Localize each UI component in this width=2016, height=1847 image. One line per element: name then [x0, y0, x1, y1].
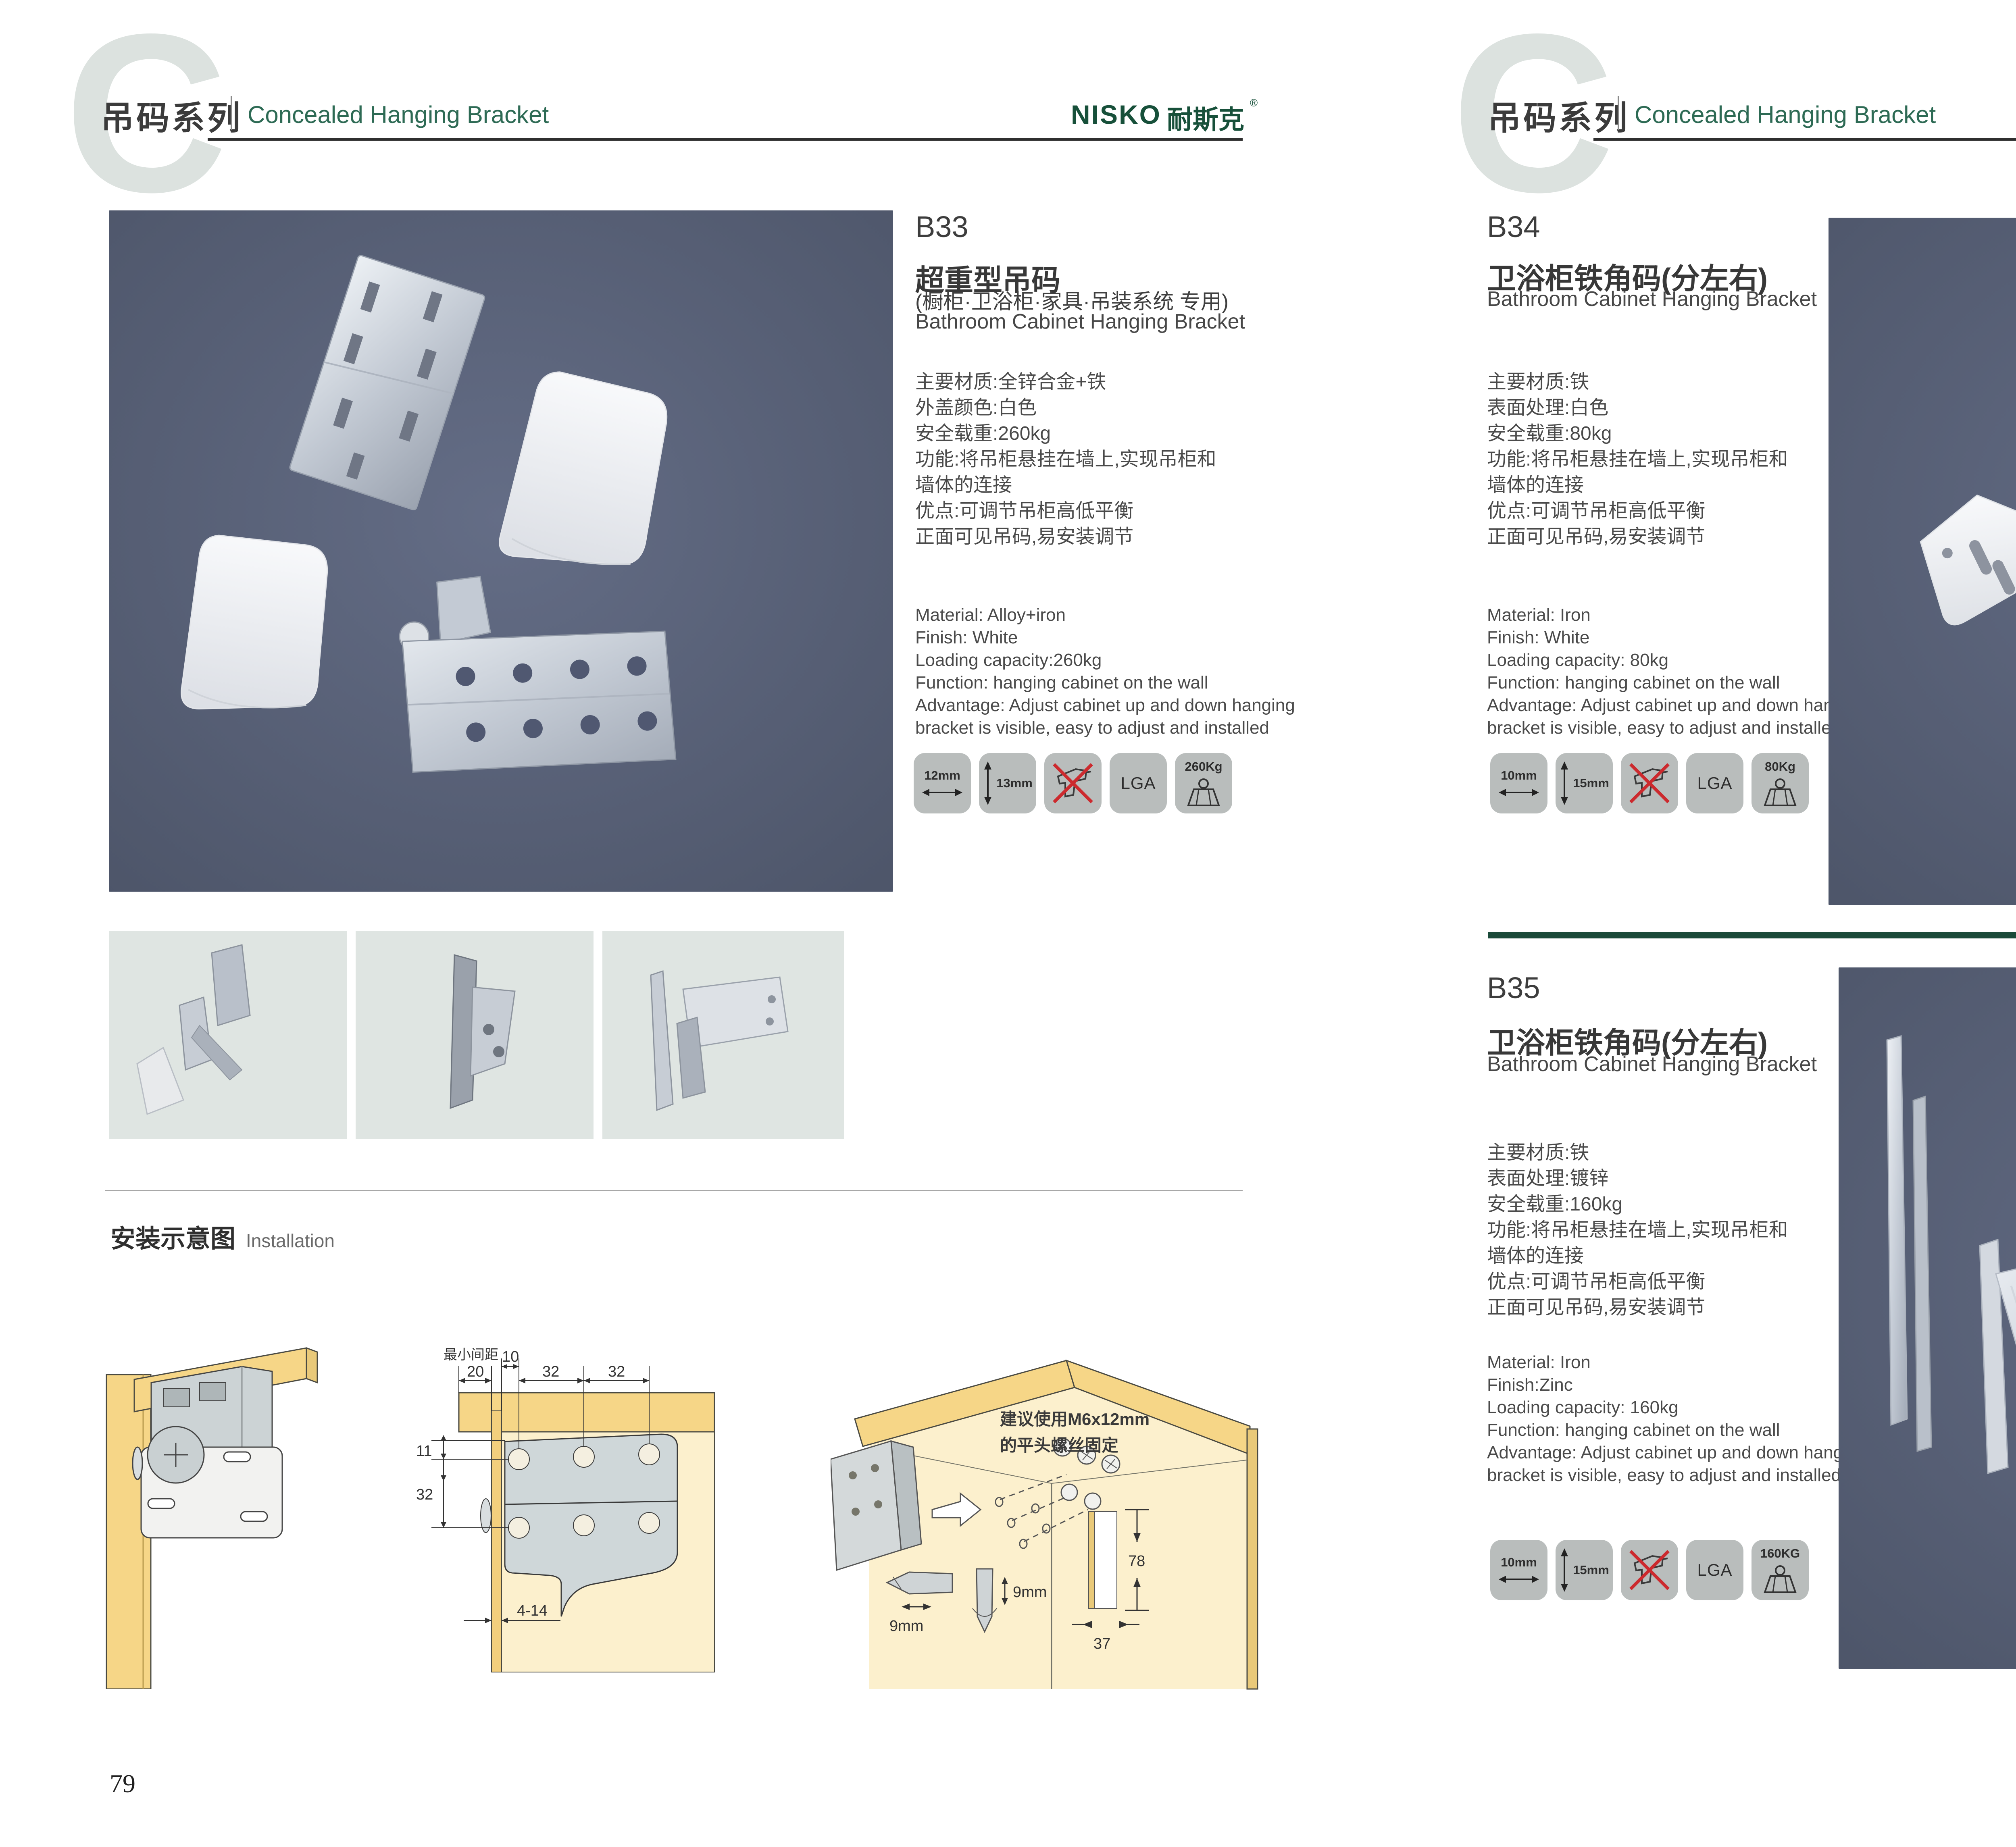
b33-thumbnail-2 — [356, 931, 594, 1139]
badge-width-label: 10mm — [1501, 768, 1537, 783]
dim-11: 11 — [416, 1443, 432, 1460]
installation-title-cn: 安装示意图 — [110, 1218, 235, 1254]
installation-title-en: Installation — [246, 1230, 335, 1252]
badge-no-drill — [1621, 1540, 1678, 1600]
badge-min-height: 15mm — [1556, 1540, 1613, 1600]
series-title-cn: 吊码系列 — [101, 91, 243, 139]
badge-no-drill — [1044, 753, 1102, 813]
badge-cert-label: LGA — [1697, 1560, 1732, 1580]
no-drill-icon — [1627, 761, 1672, 805]
badge-height-label: 13mm — [996, 776, 1033, 790]
horizontal-arrow-icon — [921, 787, 963, 798]
badge-cert-label: LGA — [1120, 774, 1156, 793]
weight-icon — [1761, 778, 1799, 807]
b33-product-photo — [109, 210, 893, 892]
badge-width-label: 12mm — [924, 768, 960, 783]
badge-load-capacity: 80Kg — [1752, 753, 1809, 813]
installation-divider — [105, 1190, 1243, 1191]
weight-icon — [1761, 1565, 1799, 1594]
b35-specs-cn: 主要材质:铁 表面处理:镀锌 安全载重:160kg 功能:将吊柜悬挂在墙上,实现… — [1487, 1140, 1870, 1321]
badge-width-label: 10mm — [1501, 1555, 1537, 1570]
series-title-cn-right: 吊码系列 — [1488, 91, 1630, 139]
badge-min-width: 12mm — [914, 753, 971, 813]
dim-32a: 32 — [542, 1363, 559, 1380]
b33-title-en: Bathroom Cabinet Hanging Bracket — [915, 310, 1245, 334]
dim-4-14: 4-14 — [517, 1602, 548, 1619]
dim-78: 78 — [1128, 1553, 1145, 1570]
brand-logo: NISKO 耐斯克 ® — [1071, 99, 1258, 136]
b35-specs-en: Material: Iron Finish:Zinc Loading capac… — [1487, 1351, 1890, 1487]
badge-cert-label: LGA — [1697, 774, 1732, 793]
badge-min-width: 10mm — [1490, 753, 1547, 813]
brand-logo-latin: NISKO — [1071, 99, 1161, 130]
dim-10: 10 — [502, 1348, 519, 1365]
b35-feature-badges: 10mm 15mm LGA 160KG — [1490, 1540, 1809, 1600]
header-divider-bar — [231, 96, 232, 130]
badge-no-drill — [1621, 753, 1678, 813]
registered-mark-icon: ® — [1250, 97, 1258, 109]
badge-load-label: 80Kg — [1765, 759, 1795, 774]
vertical-arrow-icon — [1559, 761, 1570, 805]
b34-code: B34 — [1487, 210, 1540, 244]
b33-specs-cn: 主要材质:全锌合金+铁 外盖颜色:白色 安全载重:260kg 功能:将吊柜悬挂在… — [915, 369, 1298, 550]
badge-load-capacity: 260Kg — [1175, 753, 1232, 813]
b35-product-photo — [1839, 967, 2016, 1669]
badge-min-height: 15mm — [1556, 753, 1613, 813]
page-number-left: 79 — [110, 1769, 135, 1799]
header-divider-bar-right — [1618, 96, 1619, 130]
dim-9mm-a: 9mm — [889, 1618, 923, 1635]
header-rule-right — [1593, 138, 2016, 141]
badge-min-width: 10mm — [1490, 1540, 1547, 1600]
section-divider-green — [1488, 932, 2016, 938]
badge-height-label: 15mm — [1573, 776, 1609, 790]
brand-logo-cn: 耐斯克 — [1167, 99, 1244, 136]
header-rule — [208, 138, 1243, 141]
horizontal-arrow-icon — [1498, 787, 1540, 798]
b33-thumbnail-3 — [602, 931, 844, 1139]
b33-feature-badges: 12mm 13mm LGA 260Kg — [914, 753, 1232, 813]
install-note-line1: 建议使用M6x12mm — [1000, 1410, 1150, 1429]
series-title-en-right: Concealed Hanging Bracket — [1635, 101, 1936, 129]
installation-diagram-2: 最小间距 20 10 32 32 11 32 4-14 — [403, 1342, 738, 1705]
install-note-line2: 的平头螺丝固定 — [1000, 1436, 1118, 1455]
horizontal-arrow-icon — [1498, 1574, 1540, 1585]
series-title-en: Concealed Hanging Bracket — [248, 101, 549, 129]
b33-thumbnail-1 — [109, 931, 347, 1139]
dim-32v: 32 — [416, 1486, 433, 1503]
b33-code: B33 — [915, 210, 968, 244]
b35-code: B35 — [1487, 971, 1540, 1005]
dim-32b: 32 — [608, 1363, 625, 1380]
badge-load-label: 160KG — [1760, 1546, 1800, 1561]
weight-icon — [1184, 778, 1223, 807]
vertical-arrow-icon — [983, 761, 993, 805]
dim-37: 37 — [1093, 1635, 1110, 1652]
badge-min-height: 13mm — [979, 753, 1036, 813]
installation-diagram-1 — [103, 1342, 393, 1689]
b33-specs-en: Material: Alloy+iron Finish: White Loadi… — [915, 604, 1318, 739]
dim-20: 20 — [467, 1363, 484, 1380]
badge-load-capacity: 160KG — [1752, 1540, 1809, 1600]
badge-certification: LGA — [1686, 1540, 1743, 1600]
no-drill-icon — [1627, 1548, 1672, 1592]
badge-load-label: 260Kg — [1185, 759, 1222, 774]
b34-specs-cn: 主要材质:铁 表面处理:白色 安全载重:80kg 功能:将吊柜悬挂在墙上,实现吊… — [1487, 369, 1870, 550]
b34-title-en: Bathroom Cabinet Hanging Bracket — [1487, 287, 1817, 311]
badge-certification: LGA — [1110, 753, 1167, 813]
b35-title-en: Bathroom Cabinet Hanging Bracket — [1487, 1052, 1817, 1076]
no-drill-icon — [1051, 761, 1095, 805]
installation-diagram-3: 78 37 建议使用M6x12mm 的平头螺丝固定 9mm 9mm — [831, 1326, 1262, 1713]
dim-min-gap: 最小间距 — [444, 1347, 498, 1362]
dim-9mm-b: 9mm — [1013, 1584, 1047, 1601]
b34-product-photo — [1829, 218, 2016, 905]
b34-feature-badges: 10mm 15mm LGA 80Kg — [1490, 753, 1809, 813]
vertical-arrow-icon — [1559, 1548, 1570, 1592]
installation-title: 安装示意图 Installation — [110, 1218, 335, 1254]
badge-certification: LGA — [1686, 753, 1743, 813]
badge-height-label: 15mm — [1573, 1563, 1609, 1577]
